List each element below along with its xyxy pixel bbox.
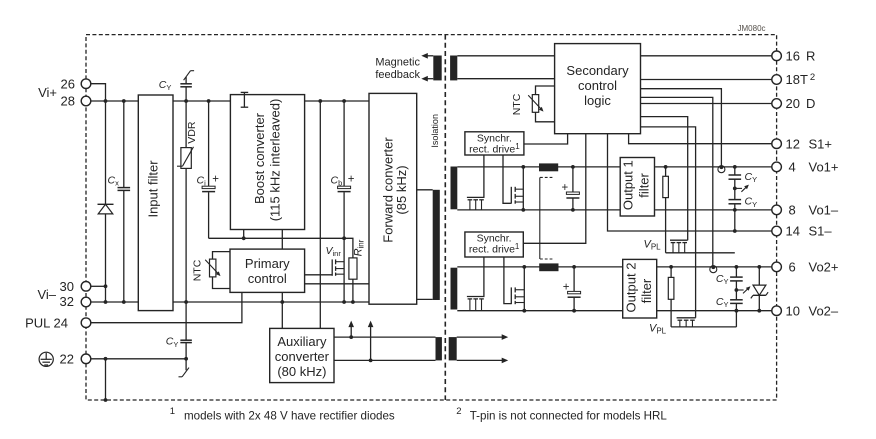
- svg-text:NTC: NTC: [192, 259, 204, 281]
- svg-text:Vi+: Vi+: [38, 85, 57, 100]
- svg-text:rect. drive1: rect. drive1: [469, 242, 520, 256]
- svg-text:4: 4: [789, 160, 796, 175]
- svg-text:22: 22: [60, 352, 74, 367]
- svg-text:+: +: [562, 182, 569, 194]
- svg-text:Input filter: Input filter: [146, 160, 161, 218]
- svg-text:+: +: [348, 174, 355, 186]
- svg-text:PUL 24: PUL 24: [25, 315, 68, 330]
- svg-text:VDR: VDR: [186, 121, 198, 144]
- svg-text:D: D: [806, 96, 815, 111]
- svg-text:14: 14: [786, 224, 800, 239]
- svg-text:+: +: [212, 174, 219, 186]
- svg-text:20: 20: [786, 96, 800, 111]
- svg-text:Vo1–: Vo1–: [809, 203, 839, 218]
- svg-text:R: R: [806, 49, 815, 64]
- svg-text:feedback: feedback: [375, 69, 420, 81]
- svg-text:8: 8: [789, 203, 796, 218]
- svg-text:Vo2–: Vo2–: [809, 303, 839, 318]
- svg-text:1: 1: [170, 406, 175, 417]
- svg-text:models with 2x 48 V have recti: models with 2x 48 V have rectifier diode…: [184, 409, 395, 422]
- svg-text:S1–: S1–: [809, 224, 833, 239]
- svg-text:rect. drive1: rect. drive1: [469, 142, 520, 156]
- svg-text:2: 2: [456, 406, 461, 417]
- svg-text:Magnetic: Magnetic: [375, 56, 420, 68]
- svg-text:Primary: Primary: [245, 256, 290, 271]
- svg-text:control: control: [578, 78, 617, 93]
- svg-text:16: 16: [786, 49, 800, 64]
- svg-text:12: 12: [786, 136, 800, 151]
- svg-text:T-pin is not connected for mod: T-pin is not connected for models HRL: [470, 409, 668, 422]
- svg-text:converter: converter: [275, 349, 330, 364]
- svg-text:+: +: [563, 281, 570, 293]
- svg-text:JM080c: JM080c: [738, 24, 766, 33]
- svg-text:NTC: NTC: [511, 93, 523, 115]
- svg-text:(85 kHz): (85 kHz): [394, 165, 409, 214]
- svg-text:Output 2: Output 2: [623, 263, 638, 313]
- svg-text:10: 10: [786, 303, 800, 318]
- svg-text:32: 32: [60, 294, 74, 309]
- svg-text:control: control: [248, 271, 287, 286]
- svg-text:Auxiliary: Auxiliary: [277, 334, 327, 349]
- svg-text:Vo2+: Vo2+: [809, 260, 839, 275]
- svg-text:Vo1+: Vo1+: [809, 160, 839, 175]
- svg-text:Isolation: Isolation: [430, 114, 440, 148]
- svg-text:logic: logic: [584, 93, 611, 108]
- svg-text:filter: filter: [639, 278, 654, 303]
- svg-text:Secondary: Secondary: [566, 63, 629, 78]
- svg-text:28: 28: [61, 94, 75, 109]
- svg-text:Vi–: Vi–: [37, 287, 56, 302]
- svg-text:S1+: S1+: [809, 136, 833, 151]
- svg-text:(80 kHz): (80 kHz): [277, 364, 326, 379]
- svg-text:26: 26: [61, 76, 75, 91]
- svg-text:filter: filter: [636, 172, 651, 197]
- svg-text:Boost converter: Boost converter: [252, 112, 267, 204]
- svg-text:Output 1: Output 1: [621, 160, 636, 210]
- svg-text:30: 30: [60, 279, 74, 294]
- svg-text:(115 kHz interleaved): (115 kHz interleaved): [267, 99, 282, 222]
- svg-text:6: 6: [789, 260, 796, 275]
